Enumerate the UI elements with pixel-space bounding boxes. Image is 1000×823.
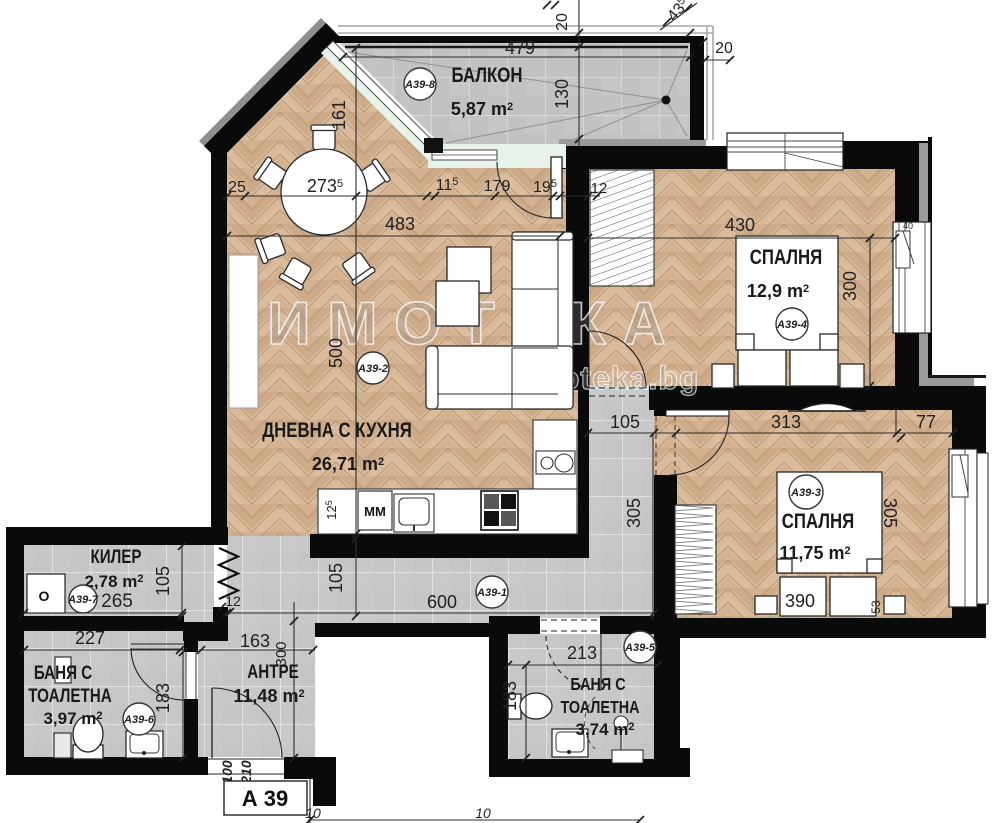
svg-text:130: 130 xyxy=(552,79,572,109)
svg-text:11,48 m2: 11,48 m2 xyxy=(233,686,304,706)
svg-text:12,9 m2: 12,9 m2 xyxy=(747,281,809,301)
svg-text:11,75 m2: 11,75 m2 xyxy=(779,543,850,563)
svg-text:25: 25 xyxy=(228,179,246,196)
svg-text:105: 105 xyxy=(153,566,173,596)
svg-text:СПАЛНЯ: СПАЛНЯ xyxy=(782,510,854,533)
svg-text:183: 183 xyxy=(153,683,173,713)
svg-text:10: 10 xyxy=(475,805,491,821)
svg-text:А39-8: А39-8 xyxy=(404,79,436,91)
svg-text:А39-5: А39-5 xyxy=(624,642,656,654)
svg-text:77: 77 xyxy=(916,412,936,432)
svg-text:479: 479 xyxy=(505,38,535,58)
svg-text:ТОАЛЕТНА: ТОАЛЕТНА xyxy=(560,698,639,718)
svg-text:105: 105 xyxy=(326,563,346,593)
svg-text:А 39: А 39 xyxy=(242,786,288,811)
svg-text:600: 600 xyxy=(427,592,457,612)
svg-text:390: 390 xyxy=(785,591,815,611)
svg-text:53: 53 xyxy=(869,600,883,614)
svg-text:12: 12 xyxy=(225,593,241,609)
svg-text:20: 20 xyxy=(554,13,571,31)
svg-text:АНТРЕ: АНТРЕ xyxy=(247,660,298,682)
svg-text:179: 179 xyxy=(484,178,511,195)
svg-text:ТОАЛЕТНА: ТОАЛЕТНА xyxy=(28,684,111,706)
svg-text:5,87 m2: 5,87 m2 xyxy=(451,99,513,119)
svg-text:483: 483 xyxy=(385,214,415,234)
svg-text:БАЛКОН: БАЛКОН xyxy=(452,64,523,87)
svg-text:500: 500 xyxy=(326,338,346,368)
svg-text:БАНЯ С: БАНЯ С xyxy=(34,661,92,683)
svg-text:А39-7: А39-7 xyxy=(67,594,99,606)
svg-text:300: 300 xyxy=(840,271,860,301)
svg-text:СПАЛНЯ: СПАЛНЯ xyxy=(750,246,822,269)
svg-text:305: 305 xyxy=(880,498,900,528)
svg-text:А39-3: А39-3 xyxy=(790,487,821,499)
svg-text:КИЛЕР: КИЛЕР xyxy=(90,545,141,567)
svg-text:12: 12 xyxy=(591,180,608,197)
svg-text:227: 227 xyxy=(75,628,105,648)
svg-text:А39-2: А39-2 xyxy=(357,363,388,375)
svg-text:БАНЯ С: БАНЯ С xyxy=(570,675,626,695)
svg-text:105: 105 xyxy=(610,412,640,432)
svg-text:265: 265 xyxy=(101,591,133,612)
svg-text:20: 20 xyxy=(715,40,733,57)
svg-text:100: 100 xyxy=(219,760,235,784)
svg-text:2,78 m2: 2,78 m2 xyxy=(84,572,143,591)
svg-text:3,97 m2: 3,97 m2 xyxy=(43,709,102,728)
svg-text:161: 161 xyxy=(329,100,349,130)
svg-text:А39-1: А39-1 xyxy=(476,587,507,599)
svg-text:А39-4: А39-4 xyxy=(776,319,807,331)
svg-text:163: 163 xyxy=(240,631,270,651)
svg-text:305: 305 xyxy=(624,498,644,528)
svg-text:3,74 m2: 3,74 m2 xyxy=(575,720,634,739)
svg-text:213: 213 xyxy=(567,643,597,663)
svg-text:ДНЕВНА С КУХНЯ: ДНЕВНА С КУХНЯ xyxy=(262,419,412,442)
svg-text:26,71 m2: 26,71 m2 xyxy=(312,454,384,474)
svg-text:430: 430 xyxy=(725,215,755,235)
svg-text:О: О xyxy=(39,588,50,604)
svg-text:183: 183 xyxy=(500,681,520,711)
svg-text:А39-6: А39-6 xyxy=(123,714,155,726)
svg-text:40: 40 xyxy=(903,221,913,231)
svg-text:313: 313 xyxy=(771,412,801,432)
svg-text:ММ: ММ xyxy=(364,504,386,519)
